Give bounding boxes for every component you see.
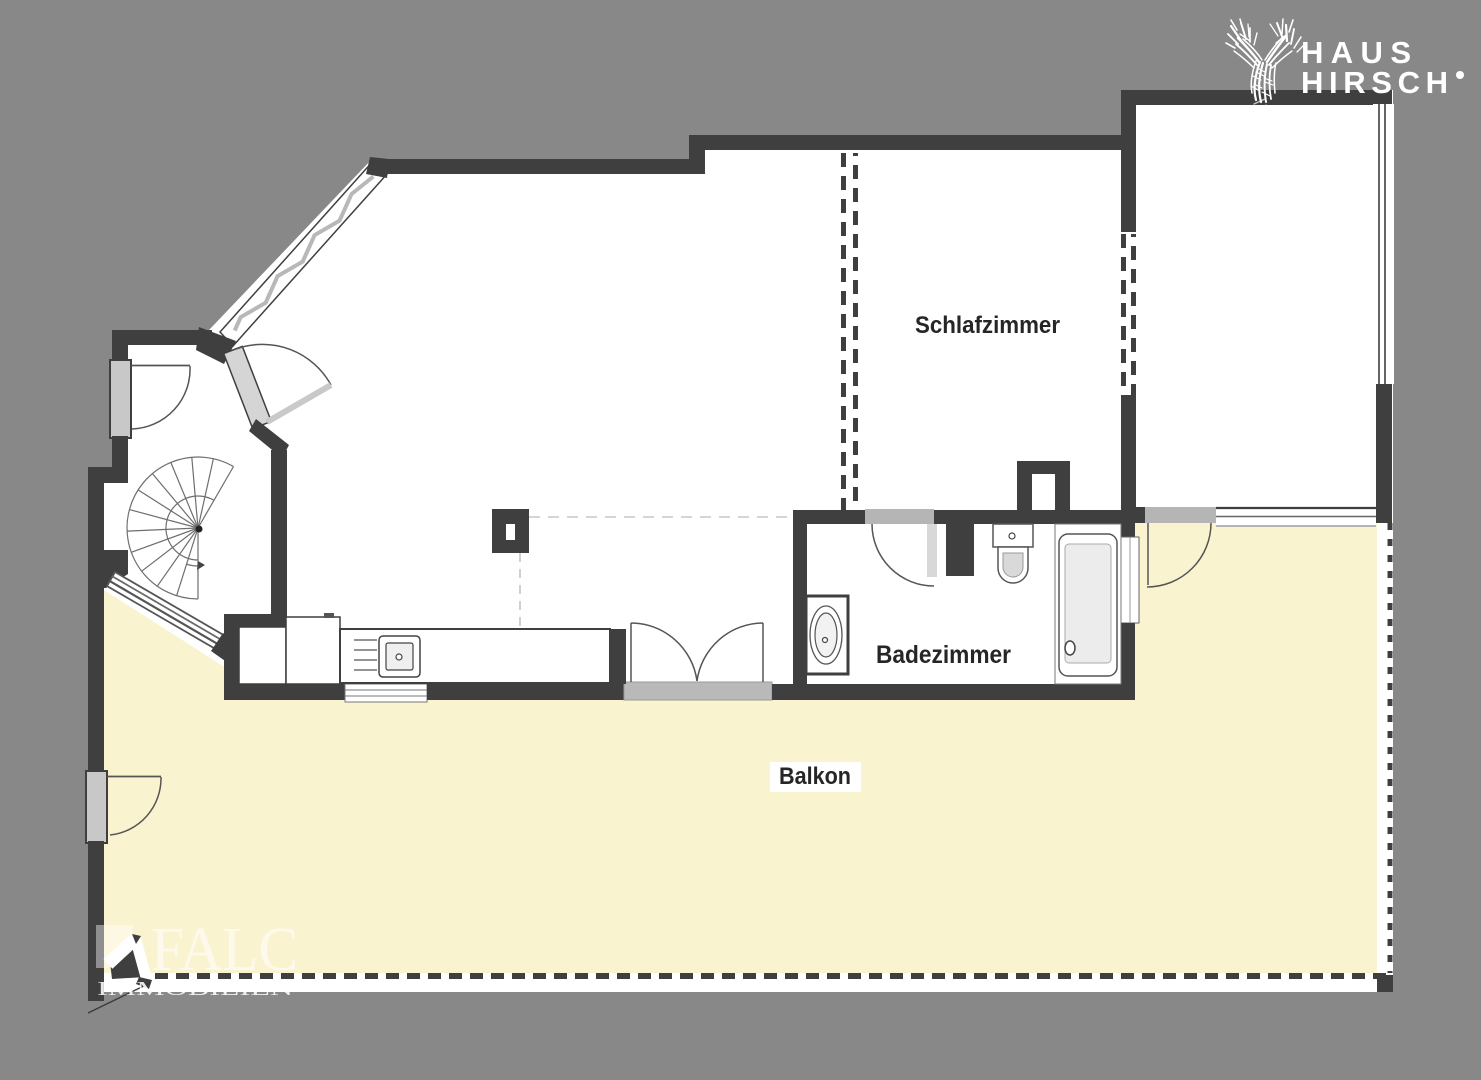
svg-text:Schlafzimmer: Schlafzimmer xyxy=(915,312,1060,339)
svg-text:HIRSCH: HIRSCH xyxy=(1301,65,1448,100)
svg-text:FALC: FALC xyxy=(151,916,298,984)
svg-text:Badezimmer: Badezimmer xyxy=(876,641,1011,669)
svg-text:Balkon: Balkon xyxy=(779,763,851,790)
svg-text:IMMOBILIEN: IMMOBILIEN xyxy=(97,978,293,1000)
